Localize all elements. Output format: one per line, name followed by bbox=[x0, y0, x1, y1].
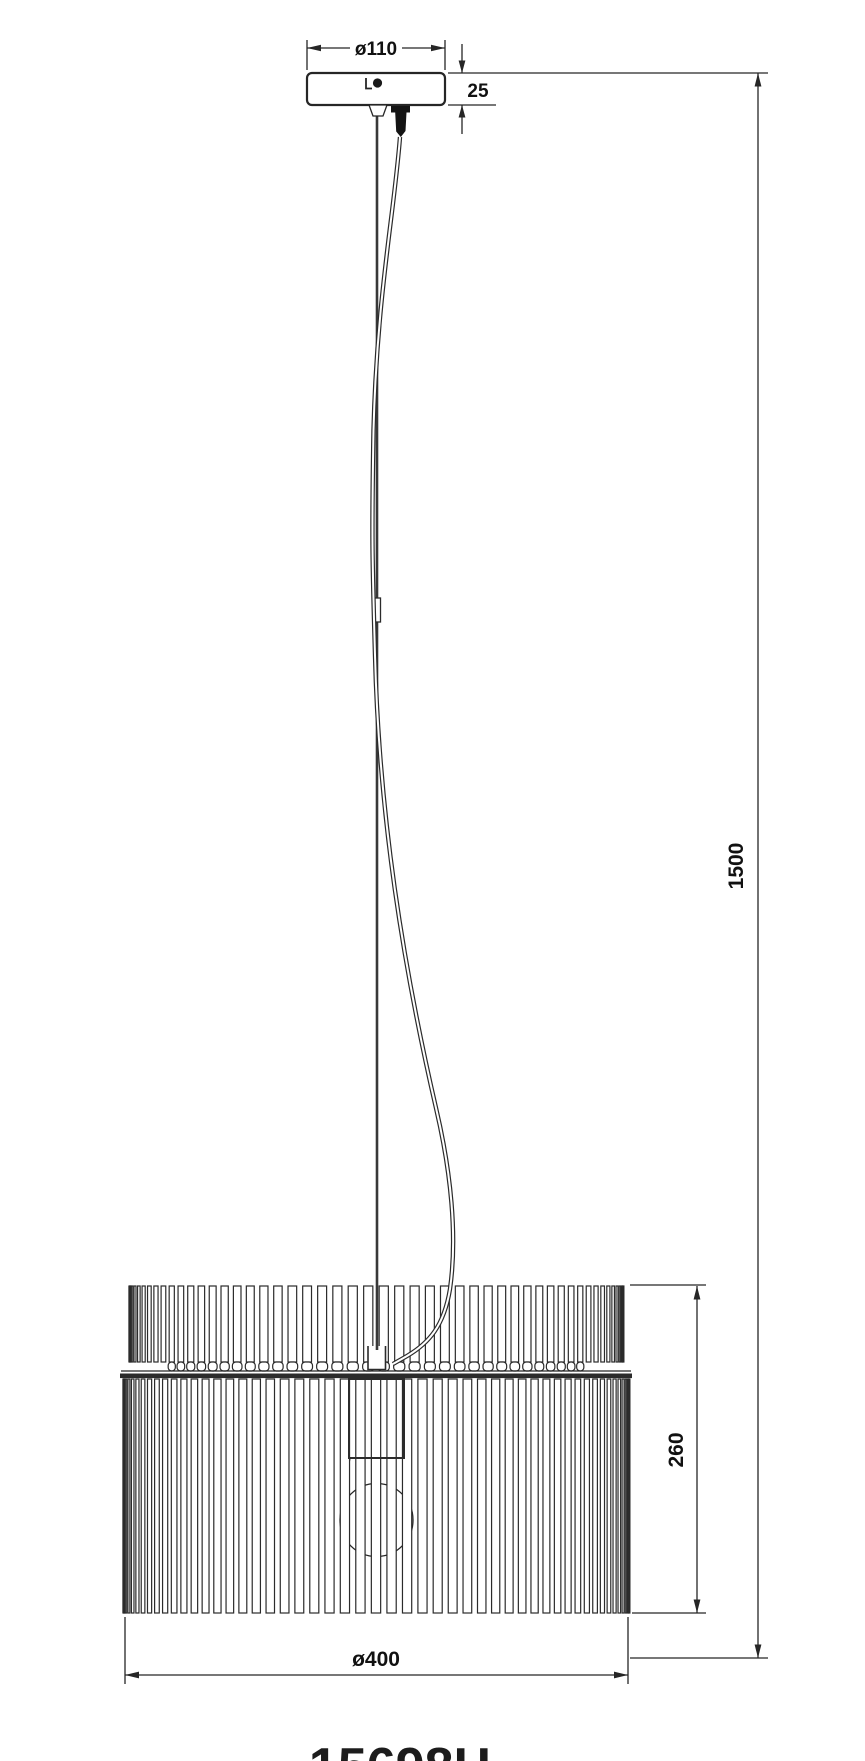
shade-ring bbox=[120, 1374, 632, 1379]
shade-slat-foot bbox=[557, 1362, 565, 1371]
shade-slat bbox=[181, 1379, 187, 1613]
shade-slat-foot bbox=[439, 1362, 450, 1371]
canopy-height-label: 25 bbox=[467, 81, 489, 102]
canopy-diameter-label: ø110 bbox=[355, 39, 397, 60]
shade-slat bbox=[131, 1286, 132, 1362]
shade-slat bbox=[524, 1286, 531, 1362]
shade-slat bbox=[492, 1379, 500, 1613]
shade-slat bbox=[131, 1379, 134, 1613]
shade-slat bbox=[470, 1286, 478, 1362]
shade-slat-foot bbox=[332, 1362, 343, 1371]
shade-slat bbox=[518, 1379, 526, 1613]
shade-slat bbox=[477, 1379, 485, 1613]
shade-slat bbox=[558, 1286, 564, 1362]
overall-drop-label: 1500 bbox=[725, 843, 748, 890]
shade-slat bbox=[325, 1379, 334, 1613]
shade-slat bbox=[138, 1286, 141, 1362]
shade-slat-foot bbox=[197, 1362, 205, 1371]
shade-slat bbox=[136, 1379, 139, 1613]
shade-slat bbox=[239, 1379, 247, 1613]
shade-slat bbox=[125, 1379, 126, 1613]
shade-slat bbox=[147, 1379, 151, 1613]
shade-slat bbox=[260, 1286, 268, 1362]
shade-slat-foot bbox=[208, 1362, 217, 1371]
shade-slat bbox=[246, 1286, 254, 1362]
shade-diameter-label: ø400 bbox=[352, 1648, 400, 1671]
shade-slat-foot bbox=[497, 1362, 507, 1371]
shade-slat bbox=[142, 1286, 145, 1362]
shade-slat-foot bbox=[510, 1362, 520, 1371]
shade-slat bbox=[594, 1286, 598, 1362]
shade-slat bbox=[214, 1379, 221, 1613]
dim-overall-drop: 1500 bbox=[630, 73, 768, 1658]
shade-slat bbox=[618, 1379, 621, 1613]
lamp-technical-drawing: ø110 25 1500 260 ø400 15698H bbox=[0, 0, 865, 1761]
shade-slat-foot bbox=[483, 1362, 493, 1371]
shade-slat-foot bbox=[273, 1362, 283, 1371]
shade-slat-foot bbox=[220, 1362, 229, 1371]
shade-slat-foot bbox=[577, 1362, 584, 1371]
shade-slat-foot bbox=[469, 1362, 479, 1371]
shade-slat-foot bbox=[546, 1362, 554, 1371]
shade-slat-foot bbox=[232, 1362, 242, 1371]
shade-slat bbox=[169, 1286, 174, 1362]
shade-slat bbox=[280, 1379, 289, 1613]
shade-slat bbox=[148, 1286, 152, 1362]
strain-relief bbox=[369, 105, 387, 116]
shade-slat bbox=[613, 1379, 616, 1613]
shade-slat bbox=[575, 1379, 581, 1613]
shade-slat bbox=[601, 1286, 605, 1362]
shade-slat bbox=[154, 1286, 158, 1362]
shade-slat bbox=[578, 1286, 583, 1362]
dim-canopy-height: 25 bbox=[448, 44, 768, 134]
shade-slat bbox=[584, 1379, 589, 1613]
shade-slat-foot bbox=[187, 1362, 195, 1371]
shade-slat bbox=[612, 1286, 615, 1362]
shade-slat bbox=[600, 1379, 604, 1613]
lamp-technical-drawing-page: ø110 25 1500 260 ø400 15698H bbox=[0, 0, 865, 1761]
shade-slat bbox=[565, 1379, 571, 1613]
shade-slat bbox=[418, 1379, 427, 1613]
shade-slat bbox=[163, 1379, 168, 1613]
shade-slat bbox=[198, 1286, 204, 1362]
shade-slat bbox=[616, 1286, 618, 1362]
shade-slat bbox=[209, 1286, 216, 1362]
shade-slat-foot bbox=[259, 1362, 269, 1371]
shade-slat bbox=[547, 1286, 553, 1362]
shade-slat-foot bbox=[287, 1362, 298, 1371]
shade-slat bbox=[433, 1379, 442, 1613]
power-cord-core bbox=[372, 137, 453, 1364]
shade-slat bbox=[505, 1379, 513, 1613]
shade-slat bbox=[543, 1379, 550, 1613]
dim-shade-height: 260 bbox=[630, 1285, 706, 1613]
shade-slat bbox=[554, 1379, 560, 1613]
shade-slat bbox=[622, 1379, 624, 1613]
shade-slat bbox=[425, 1286, 434, 1362]
shade-slat bbox=[625, 1379, 626, 1613]
shade-slat-foot bbox=[454, 1362, 465, 1371]
shade-slat bbox=[387, 1379, 396, 1613]
shade-slat-foot bbox=[523, 1362, 532, 1371]
ceiling-canopy bbox=[307, 73, 445, 105]
shade-slat bbox=[171, 1379, 177, 1613]
shade-slat-foot bbox=[409, 1362, 420, 1371]
shade-slat bbox=[371, 1379, 380, 1613]
shade-slat bbox=[221, 1286, 228, 1362]
shade-slat bbox=[178, 1286, 184, 1362]
shade-slat bbox=[448, 1379, 457, 1613]
shade-slat bbox=[511, 1286, 519, 1362]
shade-slat bbox=[607, 1286, 610, 1362]
dim-shade-diameter: ø400 bbox=[125, 1617, 628, 1684]
shade-slat bbox=[586, 1286, 591, 1362]
shade-slat bbox=[266, 1379, 274, 1613]
shade-slat bbox=[134, 1286, 136, 1362]
shade-slat bbox=[498, 1286, 506, 1362]
shade-height-label: 260 bbox=[665, 1432, 688, 1467]
shade-slat bbox=[318, 1286, 327, 1362]
part-number: 15698H bbox=[309, 1738, 491, 1761]
shade-slat bbox=[463, 1379, 472, 1613]
shade-slat bbox=[274, 1286, 282, 1362]
shade-slat bbox=[310, 1379, 319, 1613]
shade-slat bbox=[252, 1379, 260, 1613]
shade-slat-foot bbox=[168, 1362, 175, 1371]
shade-slat bbox=[455, 1286, 464, 1362]
shade-slat bbox=[188, 1286, 194, 1362]
shade-slat bbox=[348, 1286, 357, 1362]
dim-canopy-diameter: ø110 bbox=[307, 39, 445, 70]
shade-slat bbox=[395, 1286, 404, 1362]
shade-slat-foot bbox=[347, 1362, 358, 1371]
shade-slat bbox=[356, 1379, 365, 1613]
shade-slat bbox=[531, 1379, 538, 1613]
shade-slat bbox=[141, 1379, 145, 1613]
shade-slat bbox=[619, 1286, 620, 1362]
shade-slat bbox=[333, 1286, 342, 1362]
shade-slat bbox=[568, 1286, 574, 1362]
shade-slat bbox=[155, 1379, 160, 1613]
shade-slat bbox=[536, 1286, 543, 1362]
suspension bbox=[372, 116, 453, 1364]
shade-slat bbox=[607, 1379, 611, 1613]
shade-lower-slats bbox=[123, 1379, 630, 1613]
shade-slat bbox=[303, 1286, 312, 1362]
shade-slat bbox=[484, 1286, 492, 1362]
shade-slat bbox=[593, 1379, 598, 1613]
shade-slat bbox=[295, 1379, 304, 1613]
shade-slat-foot bbox=[177, 1362, 185, 1371]
shade-slat bbox=[202, 1379, 209, 1613]
cable-gripper-dot-icon bbox=[373, 78, 382, 87]
shade-slat bbox=[161, 1286, 166, 1362]
power-cord bbox=[372, 137, 453, 1364]
shade-slat-foot bbox=[535, 1362, 544, 1371]
power-connector bbox=[391, 106, 410, 137]
shade-slat-foot bbox=[302, 1362, 313, 1371]
shade-slat bbox=[191, 1379, 197, 1613]
shade-slat bbox=[226, 1379, 234, 1613]
shade-slat bbox=[233, 1286, 241, 1362]
shade-slat-foot bbox=[317, 1362, 328, 1371]
shade-slat-foot bbox=[424, 1362, 435, 1371]
shade-slat bbox=[128, 1379, 130, 1613]
shade-slat bbox=[288, 1286, 297, 1362]
shade-slat-foot bbox=[245, 1362, 255, 1371]
shade-slat-foot bbox=[567, 1362, 575, 1371]
